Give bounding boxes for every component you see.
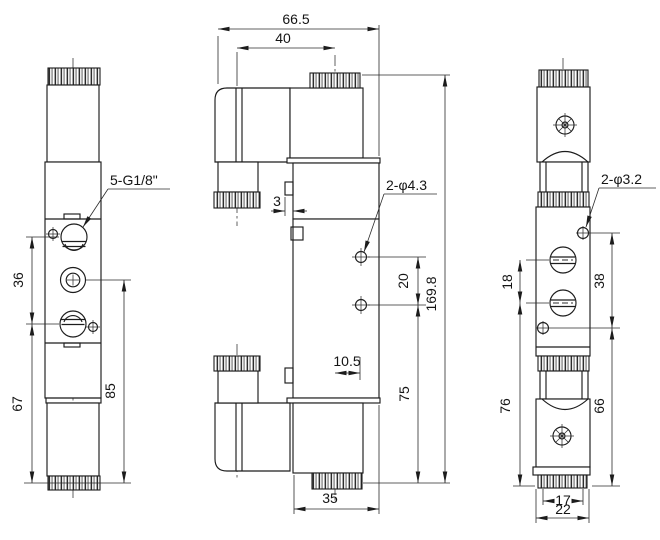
top-din-connector [215, 88, 290, 162]
end-top-collar [540, 162, 588, 192]
drawing-svg: 5-G1/8" 36 67 85 [0, 0, 660, 540]
dim-40: 40 [275, 30, 291, 46]
dim-66: 66 [591, 398, 607, 414]
dim-67: 67 [9, 396, 25, 412]
dim-22: 22 [555, 501, 571, 517]
dim-36: 36 [10, 272, 26, 288]
dim-169-8: 169.8 [423, 276, 439, 311]
end-base-knurl [538, 475, 587, 488]
side-bottom-solenoid [293, 403, 363, 473]
dim-18: 18 [499, 274, 515, 290]
bottom-din-connector [215, 403, 290, 471]
end-top-cap [537, 87, 590, 162]
front-bottom-solenoid [47, 403, 99, 476]
top-gland-knurl [214, 192, 260, 208]
end-upper-knurl [538, 192, 589, 207]
side-top-solenoid [290, 88, 363, 158]
end-bottom-collar [540, 371, 588, 399]
front-top-knurl [48, 68, 100, 85]
dim-85: 85 [102, 383, 118, 399]
front-port-thread-label: 5-G1/8" [110, 172, 158, 188]
dim-75: 75 [396, 386, 412, 402]
side-bottom-knurl [312, 473, 362, 489]
top-gland-neck [218, 162, 258, 192]
dim-76: 76 [497, 398, 513, 414]
bottom-gland-knurl [214, 356, 260, 371]
dim-66-5: 66.5 [282, 11, 309, 27]
end-top-knurl [539, 70, 588, 87]
dim-38: 38 [591, 273, 607, 289]
dim-3: 3 [273, 193, 281, 209]
side-top-knurl [310, 73, 360, 88]
side-hole-label: 2-φ4.3 [386, 177, 427, 193]
bottom-gland-neck [218, 371, 258, 403]
dim-10-5: 10.5 [333, 353, 360, 369]
end-hole-label: 2-φ3.2 [601, 171, 642, 187]
dim-20: 20 [395, 273, 411, 289]
front-top-solenoid [47, 85, 99, 162]
dim-35: 35 [322, 490, 338, 506]
end-lower-knurl [538, 356, 589, 371]
valve-dimension-drawing: 5-G1/8" 36 67 85 [0, 0, 660, 540]
